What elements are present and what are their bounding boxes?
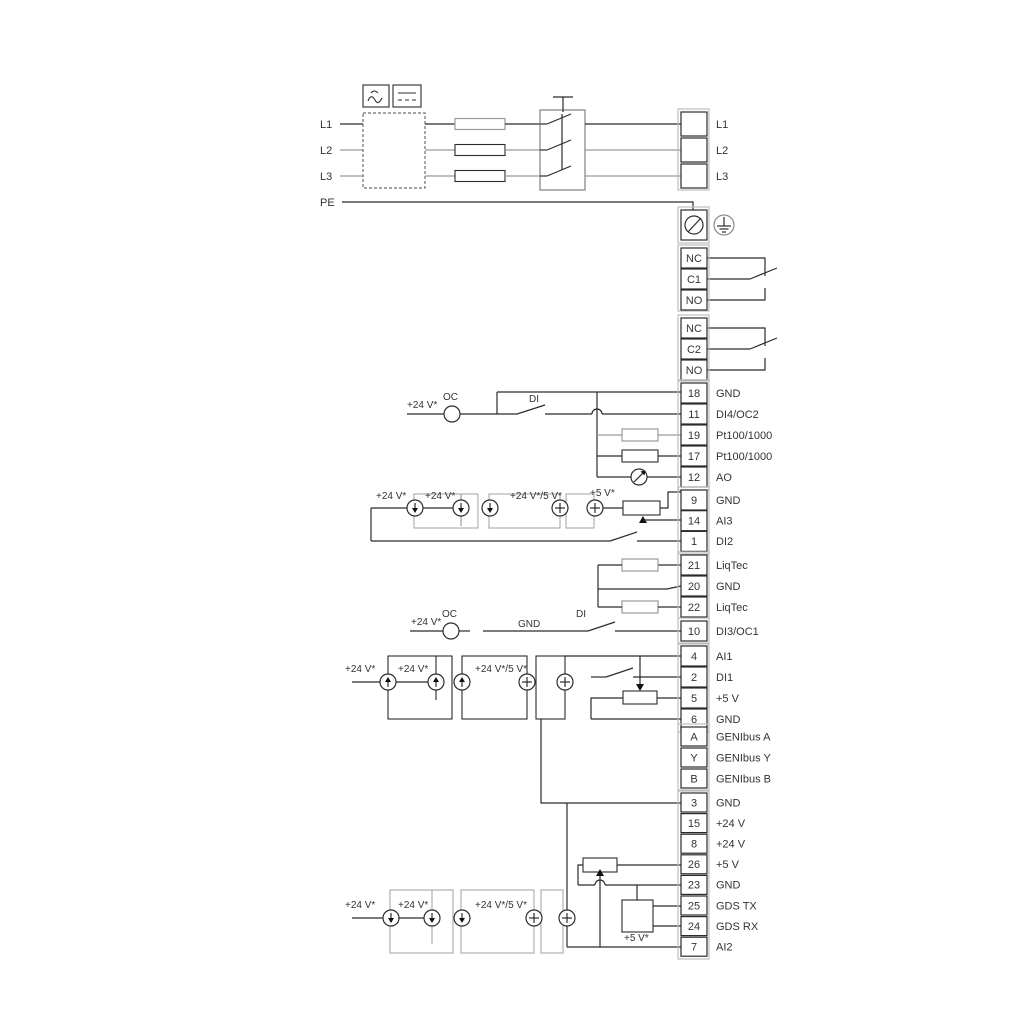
di1-switch-icon [606, 668, 633, 677]
voltage-source-icon [559, 910, 575, 926]
gds-sensor-box [622, 900, 653, 932]
terminal-block: 18GND11DI4/OC219Pt100/100017Pt100/100012… [678, 380, 772, 490]
current-sink-icon [407, 500, 423, 516]
annotation-di: DI [576, 609, 586, 620]
current-sink-icon [424, 910, 440, 926]
io2-wiring: +24 V* +24 V* +24 V*/5 V* +5 V* [371, 488, 681, 541]
current-sink-icon [454, 910, 470, 926]
annotation-24v-5v: +24 V*/5 V* [475, 900, 527, 911]
wire-to-20 [667, 586, 681, 589]
terminal-id: Y [690, 752, 698, 764]
terminal-row: 7AI2 [681, 937, 733, 956]
annotation-24v-5v: +24 V*/5 V* [475, 664, 527, 675]
terminal-id: C2 [687, 344, 701, 356]
terminal-row: 1DI2 [681, 531, 733, 551]
mains-label-l2: L2 [320, 145, 332, 157]
terminal-block: L1L2L3 [678, 109, 728, 190]
terminal-row: 9GND [681, 490, 741, 510]
terminal-block: NCC1NO [678, 245, 709, 311]
terminal-row: 25GDS TX [681, 896, 757, 915]
terminal-id: 18 [688, 388, 700, 400]
wiring-diagram: L1 L2 L3 PE [0, 0, 1024, 1024]
pt100-resistor-icon [622, 429, 658, 441]
io1-wiring: +24 V* OC DI [407, 392, 681, 485]
terminal-id: NO [686, 295, 703, 307]
current-sink-icon [482, 500, 498, 516]
terminal-id: 24 [688, 921, 700, 933]
fuse-icon-l2 [455, 145, 505, 156]
terminal-row: NC [681, 248, 707, 268]
annotation-di: DI [529, 394, 539, 405]
terminal-label: GDS RX [716, 921, 759, 933]
terminal-id: 10 [688, 626, 700, 638]
terminal-row: 5+5 V [681, 688, 740, 708]
terminal-id: 26 [688, 859, 700, 871]
terminal-row: 19Pt100/1000 [681, 425, 772, 445]
terminal-row: 22LiqTec [681, 597, 748, 617]
annotation-24v: +24 V* [398, 664, 428, 675]
terminal-row: 24GDS RX [681, 917, 759, 936]
mains-label-pe: PE [320, 197, 335, 209]
relay2-contact-icon [707, 328, 777, 370]
terminal-label: GDS TX [716, 900, 757, 912]
terminal-row: AGENIbus A [681, 727, 771, 746]
terminal-id: NC [686, 253, 702, 265]
terminal-row: NO [681, 290, 707, 310]
annotation-24v: +24 V* [345, 900, 375, 911]
terminal-label: +5 V [716, 859, 740, 871]
terminal-block: NCC2NO [678, 315, 709, 381]
voltage-source-icon [587, 500, 603, 516]
terminal-id: 2 [691, 672, 697, 684]
annotation-24v: +24 V* [345, 664, 375, 675]
pe-terminal-section [678, 207, 734, 243]
di2-switch-icon [610, 532, 637, 541]
terminal-box [681, 164, 707, 188]
terminal-row: L2 [681, 138, 728, 162]
terminal-row: 2DI1 [681, 667, 733, 687]
terminal-row: 23GND [681, 875, 741, 894]
terminal-row: NC [681, 318, 707, 338]
terminal-id: NO [686, 365, 703, 377]
terminal-label: GENIbus Y [716, 752, 771, 764]
terminal-id: B [690, 773, 697, 785]
terminal-row: L3 [681, 164, 728, 188]
terminal-label: GND [716, 581, 741, 593]
terminal-id: 1 [691, 536, 697, 548]
terminal-label: +5 V [716, 693, 740, 705]
terminal-row: L1 [681, 112, 728, 136]
terminal-row: 4AI1 [681, 646, 733, 666]
terminal-label: GND [716, 495, 741, 507]
ac-symbol-icon [363, 85, 389, 107]
annotation-24v-5v: +24 V*/5 V* [510, 491, 562, 502]
io4-wiring: +24 V* +24 V* +24 V*/5 V* [345, 656, 681, 719]
terminal-id: 8 [691, 839, 697, 851]
terminal-row: 21LiqTec [681, 555, 748, 575]
voltage-source-icon [552, 500, 568, 516]
disconnect-switch-icon [540, 97, 585, 190]
relay1-contact-icon [707, 258, 777, 300]
annotation-oc: OC [442, 609, 457, 620]
terminal-id: 5 [691, 693, 697, 705]
di4-switch-icon [517, 405, 545, 414]
terminal-row: 26+5 V [681, 855, 740, 874]
terminal-row: 6GND [681, 709, 741, 729]
earth-icon [714, 215, 734, 235]
wire-pe [342, 202, 693, 210]
terminal-label: DI3/OC1 [716, 626, 759, 638]
open-collector-icon [443, 623, 459, 639]
terminal-label: GENIbus B [716, 773, 771, 785]
annotation-5v: +5 V* [624, 933, 649, 944]
terminal-label: L3 [716, 171, 728, 183]
annotation-24v: +24 V* [376, 491, 406, 502]
terminal-label: GND [716, 797, 741, 809]
terminal-row: 15+24 V [681, 814, 746, 833]
terminal-label: GENIbus A [716, 731, 771, 743]
terminal-row: 11DI4/OC2 [681, 404, 759, 424]
terminal-row: 8+24 V [681, 834, 746, 853]
mains-power-section: L1 L2 L3 PE [320, 85, 693, 210]
open-collector-icon [444, 406, 460, 422]
current-sink-icon [453, 500, 469, 516]
terminal-box [681, 112, 707, 136]
terminal-id: NC [686, 323, 702, 335]
current-source-icon [380, 674, 396, 690]
liqtec-resistor-icon [622, 601, 658, 613]
analog-output-meter-icon [631, 469, 647, 485]
terminal-id: 7 [691, 942, 697, 954]
terminal-row: 18GND [681, 383, 741, 403]
liqtec-resistor-icon [622, 559, 658, 571]
terminal-block: 21LiqTec20GND22LiqTec [678, 552, 748, 618]
terminal-label: AO [716, 472, 732, 484]
terminal-id: 11 [688, 409, 699, 421]
voltage-source-icon [557, 674, 573, 690]
annotation-5v: +5 V* [590, 488, 615, 499]
io5-wiring: +24 V* +24 V* +24 V*/5 V* [345, 719, 681, 953]
terminal-label: AI2 [716, 942, 733, 954]
terminal-id: 12 [688, 472, 700, 484]
terminal-block: AGENIbus AYGENIbus YBGENIbus B [678, 724, 771, 791]
terminal-row: 12AO [681, 467, 732, 487]
voltage-source-icon [519, 674, 535, 690]
terminal-row: 20GND [681, 576, 741, 596]
terminal-label: LiqTec [716, 560, 748, 572]
terminal-id: 22 [688, 602, 700, 614]
fuse-icon-l1 [455, 119, 505, 130]
annotation-24v: +24 V* [425, 491, 455, 502]
annotation-24v: +24 V* [407, 400, 437, 411]
fuse-icon-l3 [455, 171, 505, 182]
terminal-id: 23 [688, 880, 700, 892]
terminal-id: 15 [688, 818, 700, 830]
terminal-id: 4 [691, 651, 697, 663]
terminal-label: AI3 [716, 516, 733, 528]
annotation-oc: OC [443, 392, 458, 403]
terminal-label: Pt100/1000 [716, 430, 772, 442]
terminal-label: AI1 [716, 651, 733, 663]
current-source-icon [428, 674, 444, 690]
terminal-row: NO [681, 360, 707, 380]
di3-switch-icon [588, 622, 615, 631]
terminal-row: 14AI3 [681, 511, 733, 531]
terminal-label: Pt100/1000 [716, 451, 772, 463]
mains-label-l1: L1 [320, 119, 332, 131]
terminal-row: YGENIbus Y [681, 748, 771, 767]
terminal-label: LiqTec [716, 602, 748, 614]
pot-wiper-arrow [636, 684, 644, 691]
terminal-label: DI2 [716, 536, 733, 548]
mains-label-l3: L3 [320, 171, 332, 183]
liqtec-wiring [598, 559, 681, 613]
potentiometer-icon [623, 691, 657, 704]
terminal-box [681, 138, 707, 162]
terminal-label: DI4/OC2 [716, 409, 759, 421]
annotation-24v: +24 V* [398, 900, 428, 911]
terminal-id: A [690, 731, 698, 743]
wire-to-3 [541, 719, 681, 803]
terminal-id: 19 [688, 430, 700, 442]
potentiometer-icon [623, 501, 660, 515]
annotation-gnd: GND [518, 619, 540, 630]
terminal-row: 17Pt100/1000 [681, 446, 772, 466]
terminal-label: L1 [716, 119, 728, 131]
frequency-converter-box [363, 113, 425, 188]
terminal-label: DI1 [716, 672, 733, 684]
wiring-diagram-page: L1 L2 L3 PE [0, 0, 1024, 1024]
pt100-resistor-icon [622, 450, 658, 462]
terminal-label: +24 V [716, 818, 746, 830]
terminal-row: 3GND [681, 793, 741, 812]
dc-symbol-icon [393, 85, 421, 107]
current-sink-icon [383, 910, 399, 926]
terminal-id: 9 [691, 495, 697, 507]
terminal-label: GND [716, 880, 741, 892]
voltage-source-icon [526, 910, 542, 926]
terminal-row: C1 [681, 269, 707, 289]
terminal-block: 9GND14AI31DI2 [678, 487, 741, 554]
terminal-id: 14 [688, 516, 700, 528]
terminal-id: C1 [687, 274, 701, 286]
terminal-block: 10DI3/OC1 [678, 618, 759, 644]
terminal-label: +24 V [716, 839, 746, 851]
terminal-id: 20 [688, 581, 700, 593]
terminal-row: 10DI3/OC1 [681, 621, 759, 641]
terminal-row: C2 [681, 339, 707, 359]
terminal-label: GND [716, 714, 741, 726]
terminal-id: 25 [688, 900, 700, 912]
terminal-id: 3 [691, 797, 697, 809]
terminal-id: 17 [688, 451, 700, 463]
terminal-row: BGENIbus B [681, 769, 771, 788]
terminal-label: GND [716, 388, 741, 400]
annotation-24v: +24 V* [411, 617, 441, 628]
terminal-label: L2 [716, 145, 728, 157]
terminal-block: 4AI12DI15+5 V6GND [678, 643, 741, 732]
terminal-id: 21 [688, 560, 700, 572]
current-source-icon [454, 674, 470, 690]
terminal-block: 3GND15+24 V8+24 V26+5 V23GND25GDS TX24GD… [678, 790, 759, 959]
